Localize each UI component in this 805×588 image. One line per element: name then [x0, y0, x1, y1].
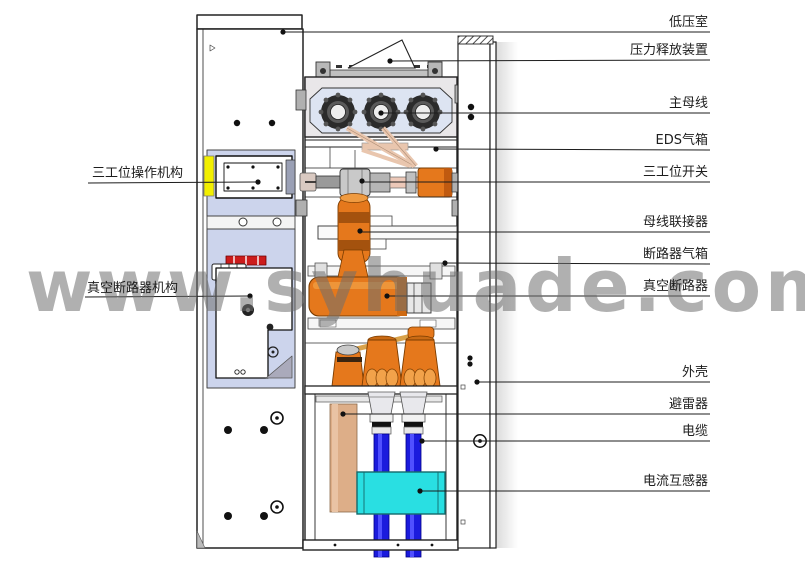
label-busbar-connector: 母线联接器 [643, 215, 708, 230]
three-position-operating-mechanism [204, 150, 295, 216]
lv-compartment [197, 15, 303, 548]
relief-flap-triangle [348, 40, 415, 68]
switchgear-cross-section-diagram: www.syhuade.com 低压室 压力释放装置 主母线 EDS气箱 三工位… [0, 0, 805, 588]
label-breaker-gas-tank: 断路器气箱 [643, 247, 708, 262]
label-enclosure: 外壳 [682, 365, 708, 380]
label-surge-arrester: 避雷器 [669, 397, 708, 412]
current-transformer [357, 472, 445, 514]
surge-arrester [330, 404, 357, 512]
mechanism-rail [207, 216, 295, 229]
main-busbar-compartment [296, 77, 465, 137]
vacuum-circuit-breaker [309, 250, 431, 316]
label-cable: 电缆 [682, 424, 708, 439]
wall-shadow [496, 42, 518, 548]
label-eds-gas-tank: EDS气箱 [656, 133, 708, 148]
label-three-position-mechanism: 三工位操作机构 [92, 166, 183, 181]
cable-compartment [303, 392, 458, 557]
label-pressure-release: 压力释放装置 [630, 43, 708, 58]
cabinet-bottom-plate [303, 540, 458, 550]
lower-bushings [332, 327, 440, 387]
label-three-position-switch: 三工位开关 [643, 165, 708, 180]
vacuum-breaker-mechanism [207, 229, 295, 388]
label-current-transformer: 电流互感器 [643, 474, 708, 489]
lv-top-lid [197, 15, 302, 29]
label-low-voltage-room: 低压室 [669, 15, 708, 30]
yellow-marker-strip [204, 156, 214, 196]
top-vent-hatch [458, 36, 493, 44]
label-main-busbar: 主母线 [669, 96, 708, 111]
label-vcb-mechanism: 真空断路器机构 [87, 281, 178, 296]
pressure-release-device [316, 40, 442, 80]
label-vacuum-breaker: 真空断路器 [643, 279, 708, 294]
